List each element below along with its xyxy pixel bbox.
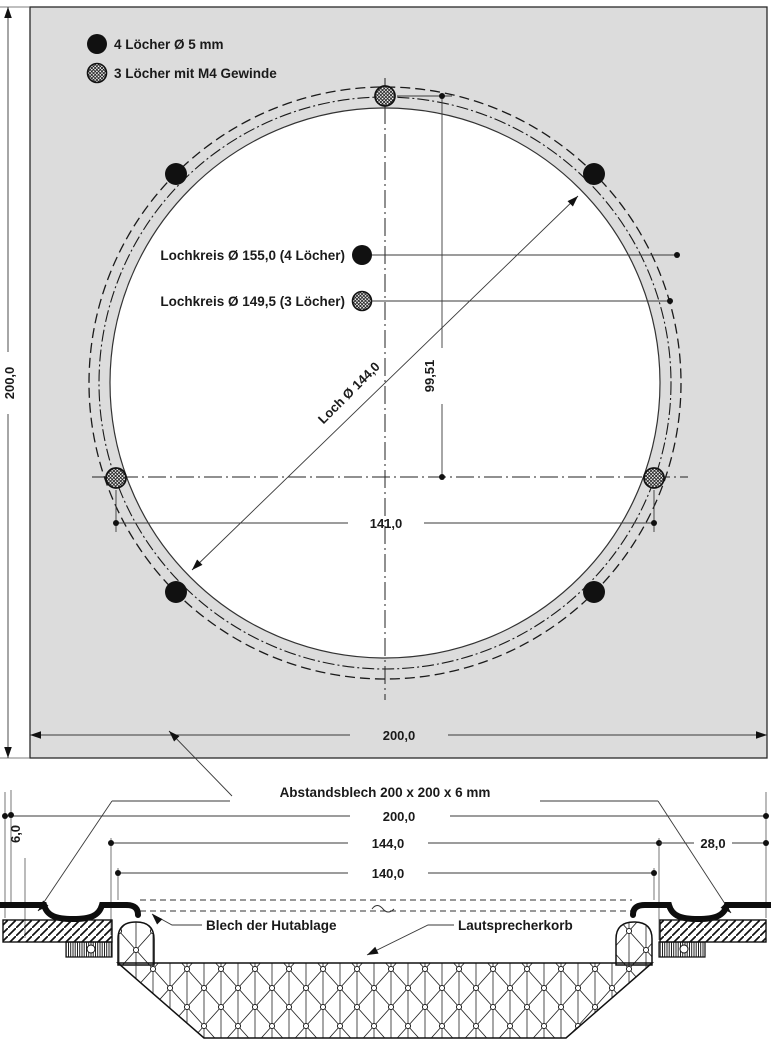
speaker-basket [66,922,705,1038]
basket-flange-hole [87,945,95,953]
drawing-svg: 4 Löcher Ø 5 mm 3 Löcher mit M4 Gewinde … [0,0,771,1047]
spacer-plate-section-right [660,920,766,942]
top-view: 4 Löcher Ø 5 mm 3 Löcher mit M4 Gewinde … [0,7,767,758]
section-dim-28-text: 28,0 [700,836,725,851]
shelf-label: Blech der Hutablage [206,918,337,933]
dim-141-text: 141,0 [370,516,403,531]
spacer-plate-section-left [3,920,112,942]
section-dim-200: 200,0 [2,809,769,824]
annotation-hole-symbol [352,245,372,265]
section-dim-140: 140,0 [115,866,657,881]
dim-plate-width-text: 200,0 [383,728,416,743]
legend-hole-label: 4 Löcher Ø 5 mm [114,37,224,52]
basket-annotation: Lautsprecherkorb [365,918,572,958]
mounting-hole [165,581,187,603]
technical-drawing-page: 4 Löcher Ø 5 mm 3 Löcher mit M4 Gewinde … [0,0,771,1047]
hat-shelf-sheet [0,905,771,919]
dim-plate-height: 200,0 [2,7,17,758]
section-dim-6: 6,0 [8,812,23,843]
basket-ear-left [118,922,154,965]
basket-label: Lautsprecherkorb [458,918,573,933]
section-dim-28: 28,0 [659,836,769,851]
shelf-annotation: Blech der Hutablage [149,911,337,933]
threaded-hole [644,468,664,488]
mounting-hole [583,163,605,185]
hidden-sheet-lines [140,900,632,911]
section-dim-140-text: 140,0 [372,866,405,881]
basket-flange-hole [680,945,688,953]
legend-thread-label: 3 Löcher mit M4 Gewinde [114,66,277,81]
section-dim-200-text: 200,0 [383,809,416,824]
legend-thread-symbol [88,64,107,83]
bolt-circle-155-label: Lochkreis Ø 155,0 (4 Löcher) [160,248,345,263]
spacer-label: Abstandsblech 200 x 200 x 6 mm [280,785,491,800]
threaded-hole [375,86,395,106]
basket-ear-right [616,922,652,965]
dim-99-51-text: 99,51 [422,360,437,393]
threaded-hole [106,468,126,488]
section-view: Abstandsblech 200 x 200 x 6 mm 200,0 144… [0,728,771,1038]
basket-body [118,963,652,1038]
section-dim-144-text: 144,0 [372,836,405,851]
section-dim-144: 144,0 [108,836,662,851]
mounting-hole [583,581,605,603]
bolt-circle-149-label: Lochkreis Ø 149,5 (3 Löcher) [160,294,345,309]
dim-plate-height-text: 200,0 [2,367,17,400]
annotation-thread-symbol [353,292,372,311]
mounting-hole [165,163,187,185]
legend-hole-symbol [87,34,107,54]
section-dim-6-text: 6,0 [8,825,23,843]
